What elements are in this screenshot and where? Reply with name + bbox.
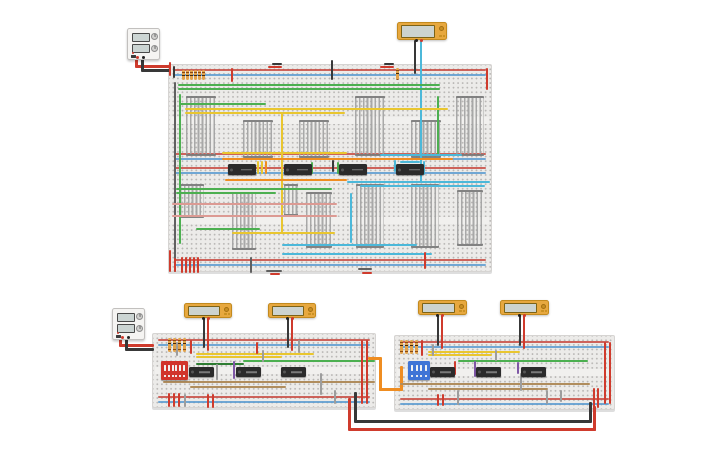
wire-red[interactable] — [185, 257, 187, 273]
resistor[interactable] — [190, 70, 193, 80]
wire-red[interactable] — [523, 315, 525, 349]
wire-yellow[interactable] — [257, 161, 259, 174]
mm-mode-dial[interactable] — [224, 307, 229, 312]
wire-gray[interactable] — [560, 390, 562, 402]
mm-positive-probe-post[interactable] — [420, 39, 423, 42]
wire-yellow[interactable] — [196, 353, 314, 355]
wire-red[interactable] — [593, 388, 595, 408]
wire-bundle[interactable] — [232, 192, 256, 250]
wire-green[interactable] — [176, 192, 276, 194]
wire-yellow[interactable] — [428, 351, 520, 353]
wire-bundle[interactable] — [355, 96, 385, 156]
wire-red[interactable] — [609, 342, 611, 404]
dip-pin-dot — [164, 375, 166, 377]
wire-green[interactable] — [176, 188, 332, 190]
wire-green[interactable] — [437, 96, 439, 156]
psu-power-led — [117, 332, 119, 334]
wire-red[interactable] — [212, 394, 214, 408]
wire-orange[interactable] — [225, 179, 347, 181]
dip-pin-dot — [411, 375, 413, 377]
wire-cyan[interactable] — [360, 185, 485, 187]
power-rail-red-line — [174, 167, 486, 169]
wire-pink[interactable] — [172, 215, 337, 217]
mm-negative-probe-post[interactable] — [518, 314, 521, 317]
dip-toggle[interactable] — [179, 365, 181, 371]
ic-chip[interactable] — [430, 367, 455, 377]
ic-chip[interactable] — [281, 367, 306, 377]
power-rail-blue-line — [158, 401, 370, 403]
psu-positive-terminal[interactable] — [121, 336, 124, 339]
mm-lcd-display — [188, 306, 220, 316]
power-rail-red-line — [400, 341, 609, 343]
dip-pin-dot — [179, 375, 181, 377]
wire-tan[interactable] — [190, 386, 286, 388]
wire-dark-gray[interactable] — [358, 268, 372, 270]
mm-mode-dial[interactable] — [308, 307, 313, 312]
dip-toggle[interactable] — [425, 365, 427, 371]
wire-cyan[interactable] — [350, 193, 352, 243]
mm-lcd-display — [422, 303, 455, 313]
dip-pin-dot — [172, 375, 174, 377]
wire-green[interactable] — [178, 84, 440, 86]
wire-red[interactable] — [268, 66, 282, 68]
wire-red[interactable] — [207, 394, 209, 408]
wire-bundle[interactable] — [457, 190, 483, 246]
wire-red[interactable] — [207, 318, 209, 351]
wire-red[interactable] — [291, 318, 293, 351]
wire-gray[interactable] — [495, 350, 497, 361]
wire-black[interactable] — [332, 160, 334, 172]
mm-mode-dial[interactable] — [541, 304, 546, 309]
wire-purple[interactable] — [517, 362, 519, 374]
wire-gray[interactable] — [432, 344, 434, 356]
wire-dark-gray[interactable] — [250, 257, 252, 273]
mm-negative-probe-post[interactable] — [436, 314, 439, 317]
wire-bundle[interactable] — [411, 184, 439, 248]
resistor[interactable] — [178, 338, 181, 352]
wire-yellow[interactable] — [428, 354, 492, 356]
mm-negative-probe-post[interactable] — [415, 39, 418, 42]
mm-positive-probe-post[interactable] — [207, 317, 210, 320]
mm-negative-probe-post[interactable] — [286, 317, 289, 320]
wire-red[interactable] — [270, 273, 280, 275]
wire-purple[interactable] — [233, 361, 235, 379]
wire-red[interactable] — [168, 393, 170, 407]
mm-button[interactable] — [224, 313, 227, 315]
circuit-canvas — [0, 0, 725, 453]
wire-cyan[interactable] — [282, 244, 417, 246]
ic-chip[interactable] — [228, 164, 256, 175]
power-supply-top[interactable] — [127, 28, 160, 60]
wire-green[interactable] — [179, 94, 181, 244]
power-rail-red-line — [174, 259, 486, 261]
wire-bundle[interactable] — [456, 96, 484, 156]
wire-cyan[interactable] — [380, 154, 462, 156]
dip-toggle[interactable] — [168, 365, 170, 371]
resistor[interactable] — [405, 340, 408, 354]
psu-voltage-display — [132, 33, 150, 42]
wire-tan[interactable] — [428, 388, 548, 390]
mm-button[interactable] — [545, 310, 547, 312]
dip-pin-dot — [175, 375, 177, 377]
psu-power-led — [132, 52, 134, 54]
wire-black[interactable] — [519, 315, 521, 346]
mm-button[interactable] — [308, 313, 311, 315]
wire-black[interactable] — [287, 318, 289, 348]
dip-pin-dot — [183, 375, 185, 377]
wire-black[interactable] — [331, 60, 333, 80]
wire-green[interactable] — [178, 88, 440, 90]
wire-gray[interactable] — [320, 373, 322, 395]
mm-lcd-display — [504, 303, 537, 313]
wire-red[interactable] — [231, 68, 233, 82]
power-rail-red-line — [158, 396, 370, 398]
wire-red[interactable] — [189, 257, 191, 273]
wire-yellow[interactable] — [196, 356, 282, 358]
multimeter-4[interactable] — [500, 300, 549, 315]
wire-cyan[interactable] — [400, 161, 420, 163]
resistor[interactable] — [173, 338, 176, 352]
psu-voltage-display — [117, 313, 135, 322]
wire-red[interactable] — [193, 257, 195, 273]
wire-gray[interactable] — [216, 364, 218, 380]
wire-red[interactable] — [169, 250, 171, 272]
wire-black[interactable] — [272, 63, 282, 65]
mm-button[interactable] — [443, 35, 445, 37]
wire-red[interactable] — [421, 340, 423, 356]
dip-toggle[interactable] — [411, 365, 413, 371]
power-rail-blue-line — [174, 264, 486, 266]
wire-yellow[interactable] — [185, 108, 448, 110]
wire-dark-gray[interactable] — [266, 270, 282, 272]
wire-bundle[interactable] — [306, 192, 332, 248]
multimeter-3[interactable] — [418, 300, 467, 315]
wire-gray[interactable] — [298, 340, 300, 353]
wire-yellow[interactable] — [232, 232, 335, 234]
dip-switch-red[interactable] — [161, 361, 188, 380]
multimeter-1[interactable] — [184, 303, 232, 318]
dip-pin-dot — [168, 375, 170, 377]
wire-black[interactable] — [141, 69, 171, 72]
dip-pin-dot — [420, 375, 422, 377]
wire-red[interactable] — [366, 340, 368, 404]
wire-red[interactable] — [173, 393, 175, 407]
wire-black[interactable] — [589, 402, 592, 422]
wire-red[interactable] — [486, 68, 488, 90]
wire-red[interactable] — [362, 272, 372, 274]
wire-red[interactable] — [348, 398, 351, 430]
wire-red[interactable] — [197, 257, 199, 273]
wire-pink[interactable] — [172, 203, 337, 205]
dip-toggle[interactable] — [175, 365, 177, 371]
wire-green[interactable] — [458, 360, 588, 362]
wire-black[interactable] — [384, 63, 394, 65]
wire-red[interactable] — [593, 406, 596, 431]
resistor[interactable] — [194, 70, 197, 80]
wire-red[interactable] — [424, 252, 426, 269]
ic-chip[interactable] — [189, 367, 214, 377]
wire-black[interactable] — [354, 392, 357, 422]
resistor[interactable] — [415, 340, 418, 354]
wire-cyan[interactable] — [347, 181, 490, 183]
dip-toggle[interactable] — [416, 365, 418, 371]
dip-pin-dot — [416, 375, 418, 377]
mm-mode-dial[interactable] — [459, 304, 464, 309]
dip-toggle[interactable] — [172, 365, 174, 371]
dip-toggle[interactable] — [420, 365, 422, 371]
wire-black[interactable] — [354, 420, 592, 423]
resistor[interactable] — [202, 70, 205, 80]
mm-button[interactable] — [459, 310, 462, 312]
wire-red[interactable] — [604, 342, 606, 404]
wire-red[interactable] — [169, 62, 171, 76]
mm-button[interactable] — [312, 313, 314, 315]
wire-orange[interactable] — [379, 357, 382, 391]
wire-red[interactable] — [190, 340, 192, 354]
mm-positive-probe-post[interactable] — [291, 317, 294, 320]
wire-bundle[interactable] — [356, 184, 384, 248]
wire-yellow[interactable] — [222, 152, 347, 154]
wire-black[interactable] — [203, 318, 205, 348]
wire-tan[interactable] — [400, 383, 590, 385]
wire-green[interactable] — [196, 228, 260, 230]
dip-toggle[interactable] — [164, 365, 166, 371]
wire-red[interactable] — [181, 257, 183, 273]
wire-gray[interactable] — [334, 390, 336, 404]
psu-voltage-knob[interactable] — [136, 313, 143, 320]
ic-chip[interactable] — [236, 367, 261, 377]
wire-gray[interactable] — [262, 350, 264, 362]
ic-chip[interactable] — [476, 367, 501, 377]
psu-negative-terminal[interactable] — [142, 56, 145, 59]
resistor[interactable] — [198, 70, 201, 80]
mm-lcd-display — [401, 25, 435, 38]
mm-negative-probe-post[interactable] — [202, 317, 205, 320]
wire-cyan[interactable] — [282, 253, 432, 255]
ic-chip[interactable] — [339, 164, 367, 175]
power-rail-red-line — [400, 398, 609, 400]
wire-bundle[interactable] — [186, 96, 216, 156]
wire-black[interactable] — [125, 348, 154, 351]
multimeter-top[interactable] — [397, 22, 447, 40]
power-rail-blue-line — [174, 74, 486, 76]
dip-switch-blue[interactable] — [408, 361, 430, 380]
wire-red[interactable] — [178, 393, 180, 407]
wire-orange[interactable] — [222, 158, 453, 160]
wire-dark-gray[interactable] — [174, 82, 176, 272]
resistor[interactable] — [400, 340, 403, 354]
mm-button[interactable] — [439, 35, 442, 37]
wire-cyan[interactable] — [420, 40, 422, 183]
power-supply-bottom[interactable] — [112, 308, 145, 340]
wire-tan[interactable] — [163, 381, 375, 383]
psu-current-display — [117, 324, 135, 333]
wire-black[interactable] — [437, 315, 439, 346]
psu-negative-terminal[interactable] — [127, 336, 130, 339]
mm-button[interactable] — [228, 313, 230, 315]
wire-red[interactable] — [174, 258, 176, 272]
psu-current-knob[interactable] — [136, 325, 143, 332]
wire-yellow[interactable] — [185, 112, 345, 114]
psu-voltage-knob[interactable] — [151, 33, 158, 40]
psu-positive-terminal[interactable] — [136, 56, 139, 59]
wire-gray[interactable] — [457, 390, 459, 405]
ic-chip[interactable] — [284, 164, 312, 175]
wire-red[interactable] — [361, 340, 363, 404]
power-rail-blue-line — [400, 403, 609, 405]
psu-current-display — [132, 44, 150, 53]
wire-green[interactable] — [180, 103, 266, 105]
wire-red[interactable] — [441, 315, 443, 349]
mm-button[interactable] — [541, 310, 544, 312]
resistor[interactable] — [396, 68, 399, 80]
wire-gray[interactable] — [546, 390, 548, 404]
power-rail-blue-line — [174, 172, 486, 174]
mm-positive-probe-post[interactable] — [523, 314, 526, 317]
wire-black[interactable] — [173, 66, 175, 78]
resistor[interactable] — [182, 70, 185, 80]
wire-red[interactable] — [380, 66, 394, 68]
mm-mode-dial[interactable] — [439, 26, 444, 31]
mm-button[interactable] — [463, 310, 465, 312]
wire-dark-green[interactable] — [196, 363, 244, 365]
wire-red[interactable] — [437, 394, 439, 406]
mm-lcd-display — [272, 306, 304, 316]
board-center-gap — [171, 117, 489, 124]
resistor[interactable] — [183, 338, 186, 352]
psu-current-knob[interactable] — [151, 45, 158, 52]
ic-chip[interactable] — [396, 164, 424, 175]
power-rail-red-line — [174, 69, 486, 71]
dip-pin-dot — [425, 375, 427, 377]
resistor[interactable] — [410, 340, 413, 354]
mm-positive-probe-post[interactable] — [441, 314, 444, 317]
dip-toggle[interactable] — [183, 365, 185, 371]
wire-orange[interactable] — [400, 366, 403, 391]
multimeter-2[interactable] — [268, 303, 316, 318]
wire-orange[interactable] — [265, 161, 267, 174]
resistor[interactable] — [186, 70, 189, 80]
wire-yellow[interactable] — [261, 161, 263, 174]
ic-chip[interactable] — [521, 367, 546, 377]
wire-red[interactable] — [442, 394, 444, 406]
wire-red[interactable] — [256, 342, 258, 354]
resistor[interactable] — [168, 338, 171, 352]
wire-red[interactable] — [597, 388, 599, 408]
wire-gray[interactable] — [184, 394, 186, 407]
wire-black[interactable] — [414, 40, 416, 74]
wire-red[interactable] — [348, 428, 596, 431]
